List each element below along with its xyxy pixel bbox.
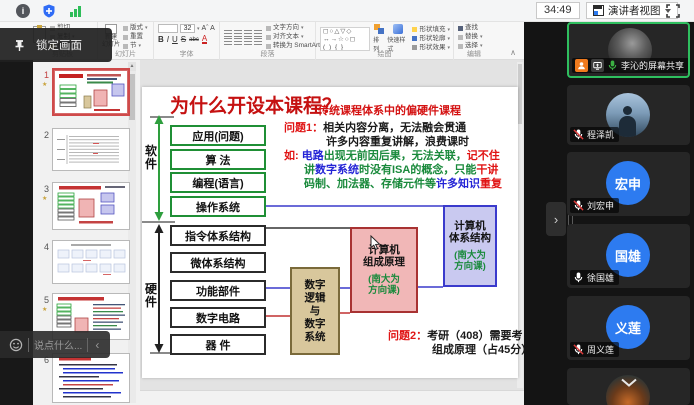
- group-label-font: 字体: [154, 49, 219, 59]
- font-size-box[interactable]: 32: [180, 24, 195, 33]
- layer-digital-circuit: 数字电路: [170, 307, 266, 328]
- layer-devices: 器 件: [170, 334, 266, 355]
- layer-algorithm: 算 法: [170, 149, 266, 170]
- animation-star-icon: ★: [42, 306, 47, 313]
- slide-thumbnail-6[interactable]: [52, 353, 130, 403]
- shape-outline-button[interactable]: 形状轮廓▾: [412, 35, 450, 43]
- participant-sidebar: › 李沁的屏幕共享 程泽凯: [524, 22, 694, 405]
- slide-canvas[interactable]: 为什么开设本课程？ 传统课程体系中的偏硬件课程 问题1：相关内容分离，无法融会贯…: [142, 87, 518, 378]
- thumbnail-art: [54, 70, 128, 114]
- participant-name-bar: 李沁的屏幕共享: [572, 58, 689, 73]
- animation-star-icon: ★: [42, 81, 47, 88]
- mic-muted-icon: [573, 344, 584, 355]
- collapse-sidebar-handle[interactable]: ›: [546, 202, 566, 236]
- chevron-right-icon: ›: [554, 212, 558, 227]
- info-icon[interactable]: i: [16, 4, 30, 18]
- participant-tile[interactable]: 国雄 徐国雄: [567, 224, 690, 288]
- host-badge-icon: [575, 59, 588, 72]
- participant-name: 周义莲: [587, 343, 614, 356]
- view-mode-label: 演讲者视图: [608, 3, 661, 18]
- network-signal-icon[interactable]: [70, 5, 84, 17]
- layer-os: 操作系统: [170, 196, 266, 217]
- list-and-align-icons[interactable]: [224, 24, 262, 50]
- scroll-more-chevron-icon[interactable]: [620, 378, 638, 387]
- bold-button[interactable]: B: [158, 35, 164, 44]
- fullscreen-icon[interactable]: [666, 4, 680, 18]
- font-size-dropdown[interactable]: ▾: [197, 26, 200, 32]
- meeting-timer: 34:49: [536, 2, 580, 19]
- participant-tile[interactable]: 程泽凯: [567, 85, 690, 145]
- participant-name: 刘宏申: [587, 199, 614, 212]
- thumb-number-5: 5: [39, 295, 49, 305]
- participant-name-bar: 徐国雄: [570, 270, 619, 285]
- find-button[interactable]: 查找: [458, 24, 491, 32]
- participant-tile[interactable]: 义莲 周义莲: [567, 296, 690, 360]
- slide-subtitle: 传统课程体系中的偏硬件课程: [318, 102, 461, 118]
- chat-input-placeholder[interactable]: 说点什么...: [34, 337, 82, 352]
- slide-editing-area: 为什么开设本课程？ 传统课程体系中的偏硬件课程 问题1：相关内容分离，无法融会贯…: [140, 60, 524, 405]
- mouse-cursor-icon: [370, 235, 381, 251]
- hardware-label: 硬 件: [144, 283, 158, 309]
- box-title: 计算机 体系结构: [449, 220, 491, 244]
- participant-name: 程泽凯: [587, 128, 614, 141]
- slide-thumbnail-3[interactable]: [52, 182, 130, 230]
- thumbnail-art: [53, 354, 129, 402]
- lock-view-tooltip[interactable]: 锁定画面: [0, 28, 112, 62]
- layer-application: 应用(问题): [170, 125, 266, 146]
- mic-muted-icon: [573, 129, 584, 140]
- thumbnail-art: [53, 183, 129, 229]
- problem2-line: 问题2：考研（408）需要考: [388, 329, 532, 343]
- grow-shrink-font-icons[interactable]: Aˆ A: [202, 25, 215, 32]
- layer-isa: 指令体系结构: [170, 225, 266, 246]
- divider: [87, 338, 88, 352]
- shape-fill-button[interactable]: 形状填充▾: [412, 26, 450, 34]
- problem1-line: 许多内容重复讲解，浪费课时: [284, 135, 502, 149]
- layer-microarch: 微体系结构: [170, 252, 266, 273]
- arrange-icon: [374, 24, 384, 34]
- box-note: (南大为 方向课): [368, 274, 400, 296]
- problem2-line: 组成原理（占45分）: [388, 343, 532, 357]
- italic-button[interactable]: I: [167, 35, 169, 44]
- participant-name: 李沁的屏幕共享: [621, 59, 684, 72]
- emoji-smile-icon[interactable]: [9, 338, 23, 352]
- thumbnail-art: [53, 129, 129, 170]
- computer-organization-box: 计算机 组成原理 (南大为 方向课): [350, 227, 418, 313]
- thumb-number-1: 1: [39, 70, 49, 80]
- divider: [28, 338, 29, 352]
- participant-tile[interactable]: 宏申 刘宏申: [567, 152, 690, 216]
- font-name-box[interactable]: [158, 24, 178, 33]
- thumb-number-4: 4: [39, 242, 49, 252]
- clear-format-button[interactable]: abc: [189, 37, 199, 43]
- replace-button[interactable]: 替换▾: [458, 33, 491, 41]
- mic-muted-icon: [573, 200, 584, 211]
- slide-title: 为什么开设本课程？: [170, 91, 341, 118]
- group-label-paragraph: 段落: [220, 49, 315, 59]
- thumbnail-art: [53, 241, 129, 283]
- problem1-line: 如: 电路出现无前因后果，无法关联，记不住: [284, 149, 502, 163]
- participant-name-bar: 刘宏申: [570, 198, 619, 213]
- strikethrough-button[interactable]: S: [181, 35, 186, 44]
- collapse-ribbon-icon[interactable]: ∧: [510, 48, 516, 57]
- ribbon-group-font: 32 ▾ Aˆ A B I U S abc A 字体: [154, 22, 220, 60]
- participant-name: 徐国雄: [587, 271, 614, 284]
- participant-name-bar: 程泽凯: [570, 127, 619, 142]
- layer-programming: 编程(语言): [170, 172, 266, 193]
- layer-function-units: 功能部件: [170, 280, 266, 301]
- avatar-silhouette: [619, 116, 636, 137]
- font-color-button[interactable]: A: [202, 35, 207, 44]
- problem1-text: 问题1：相关内容分离，无法融会贯通 许多内容重复讲解，浪费课时 如: 电路出现无…: [284, 121, 502, 191]
- animation-star-icon: ★: [42, 195, 47, 202]
- pin-icon: [13, 39, 26, 52]
- mic-on-icon: [607, 60, 618, 71]
- chevron-left-icon[interactable]: ‹: [95, 338, 99, 352]
- lock-view-label: 锁定画面: [36, 37, 82, 53]
- screen-share-icon: [591, 59, 604, 72]
- ribbon-group-drawing: ◻○△▽◇↔→☆○◻( ) { } 排列 快速样式 形状填充▾ 形状轮廓▾ 形状…: [316, 22, 454, 60]
- slide-thumbnail-4[interactable]: [52, 240, 130, 284]
- problem2-text: 问题2：考研（408）需要考 组成原理（占45分）: [388, 329, 532, 357]
- chat-quick-bar[interactable]: 说点什么... ‹: [0, 331, 110, 358]
- software-label: 软 件: [144, 145, 158, 171]
- ribbon-group-paragraph: 文字方向▾ 对齐文本▾ 转换为 SmartArt▾ 段落: [220, 22, 316, 60]
- meeting-window: i 34:49 演讲者视图 剪切 复制▾ 格式刷: [0, 0, 694, 405]
- problem1-line: 讲数字系统时没有ISA的概念，只能干讲: [284, 163, 502, 177]
- group-label-editing: 编辑: [454, 49, 494, 59]
- avatar-silhouette: [623, 106, 632, 115]
- group-label-drawing: 绘图: [316, 49, 453, 59]
- reset-button[interactable]: 重置: [123, 33, 148, 41]
- shield-protect-icon[interactable]: [42, 4, 56, 18]
- view-mode-button[interactable]: 演讲者视图: [586, 2, 678, 19]
- problem1-line: 问题1：相关内容分离，无法融会贯通: [284, 121, 502, 135]
- ppt-status-bar: [140, 390, 524, 405]
- thumb-number-2: 2: [39, 130, 49, 140]
- underline-button[interactable]: U: [172, 35, 178, 44]
- quick-styles-icon: [393, 24, 403, 34]
- ribbon-group-editing: 查找 替换▾ 选择▾ 编辑: [454, 22, 494, 60]
- problem1-line: 码制、加法器、存储元件等许多知识重复: [284, 177, 502, 191]
- slide-thumbnail-2[interactable]: [52, 128, 130, 171]
- participant-name-bar: 周义莲: [570, 342, 619, 357]
- speaker-view-icon: [593, 5, 604, 16]
- shapes-gallery[interactable]: ◻○△▽◇↔→☆○◻( ) { }: [320, 27, 370, 51]
- digital-logic-box: 数字 逻辑 与 数字 系统: [290, 267, 340, 355]
- box-note: (南大为 方向课): [454, 250, 486, 272]
- meeting-topbar: i 34:49 演讲者视图: [0, 0, 694, 22]
- participant-tile-presenter[interactable]: 李沁的屏幕共享: [567, 22, 690, 78]
- mic-on-icon: [573, 272, 584, 283]
- layout-button[interactable]: 版式▾: [123, 24, 148, 32]
- slide-thumbnail-1[interactable]: [52, 68, 130, 116]
- thumb-number-3: 3: [39, 184, 49, 194]
- computer-architecture-box: 计算机 体系结构 (南大为 方向课): [443, 205, 497, 287]
